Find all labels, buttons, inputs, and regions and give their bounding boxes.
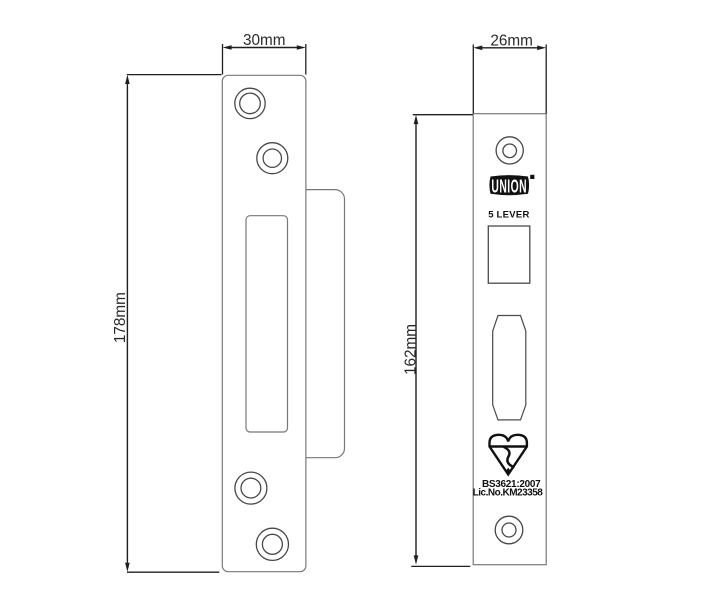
svg-text:Lic.No.KM23358: Lic.No.KM23358 bbox=[473, 488, 544, 499]
svg-text:162mm: 162mm bbox=[402, 324, 419, 375]
svg-text:26mm: 26mm bbox=[490, 32, 533, 49]
svg-text:178mm: 178mm bbox=[112, 292, 129, 343]
svg-text:30mm: 30mm bbox=[243, 32, 286, 49]
svg-text:UNION: UNION bbox=[491, 176, 527, 197]
svg-text:5 LEVER: 5 LEVER bbox=[488, 210, 529, 221]
